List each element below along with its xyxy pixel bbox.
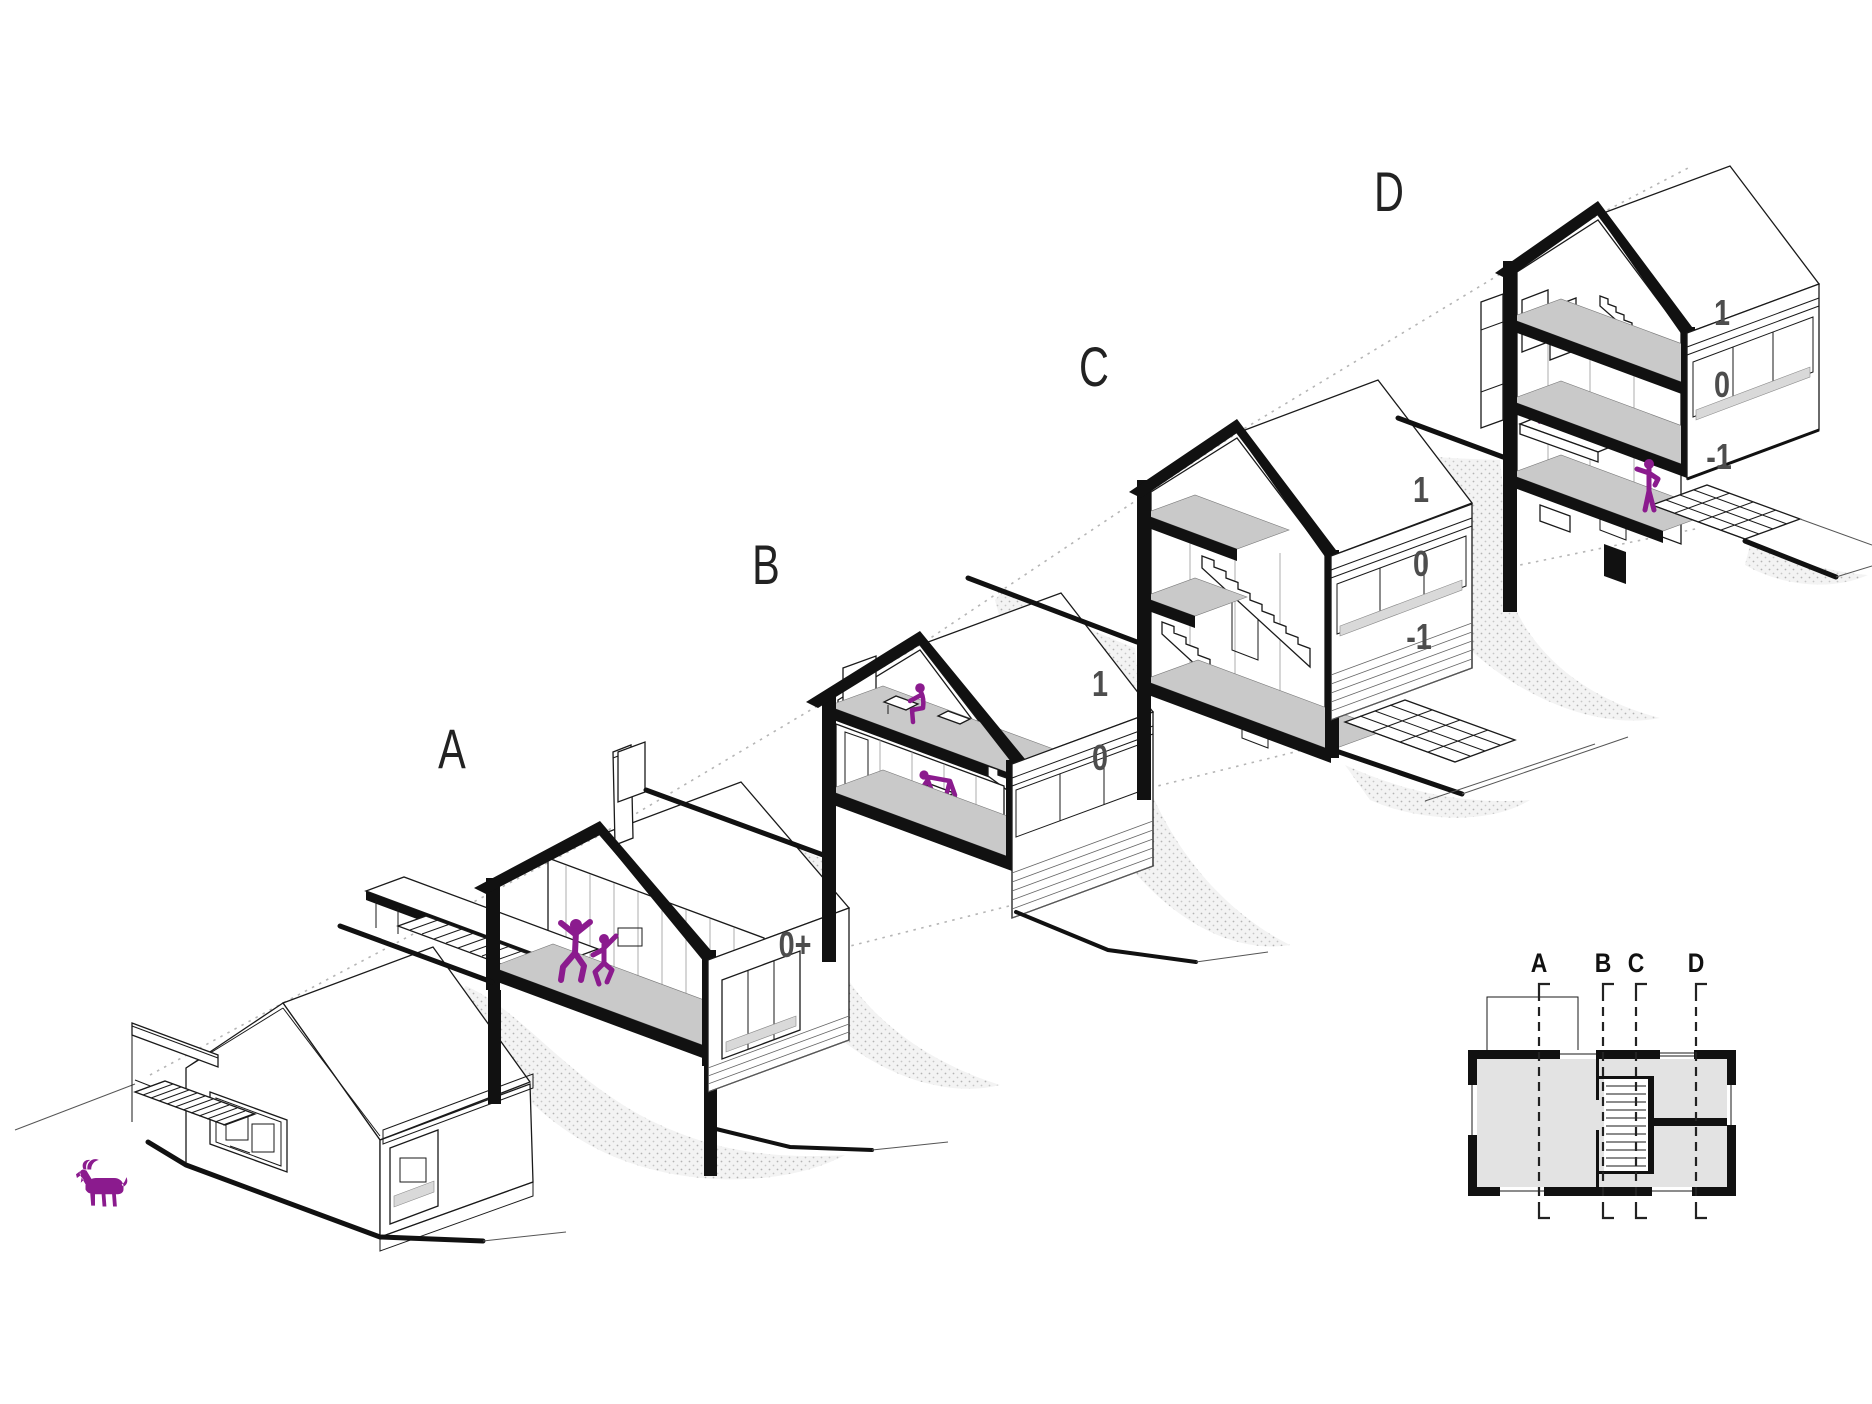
plan-terrace <box>1487 997 1578 1052</box>
level-label-c-0: 0 <box>1413 543 1429 584</box>
section-a-title: A <box>438 718 466 781</box>
plan-mark-b: B <box>1595 948 1612 978</box>
left-cut-wall <box>1137 480 1151 800</box>
house-overview <box>15 947 566 1251</box>
foundation <box>1604 544 1626 584</box>
diagram-canvas: A B C D A B C D 0+ 1 0 1 0 -1 1 0 -1 <box>0 0 1872 1404</box>
plan-mark-d: D <box>1688 948 1705 978</box>
level-label-d-0: 0 <box>1714 364 1730 405</box>
left-wall-strip <box>1481 294 1503 428</box>
level-label-d-minus1: -1 <box>1706 436 1732 477</box>
plan-mark-c: C <box>1628 948 1645 978</box>
cabinet <box>1540 505 1570 532</box>
left-cut-wall <box>1503 261 1517 612</box>
level-label-d-1: 1 <box>1714 292 1730 333</box>
section-b-title: B <box>752 534 780 597</box>
level-label-c-1: 1 <box>1413 469 1429 510</box>
architectural-diagram: A B C D A B C D 0+ 1 0 1 0 -1 1 0 -1 <box>0 0 1872 1404</box>
cut-post <box>618 742 645 802</box>
level-label-b-0: 0 <box>1092 737 1108 778</box>
level-label-a-0plus: 0+ <box>779 924 812 965</box>
level-label-c-minus1: -1 <box>1406 616 1432 657</box>
paving <box>1345 700 1515 762</box>
section-d-title: D <box>1374 161 1404 224</box>
plan-mark-a: A <box>1531 948 1548 978</box>
section-c-title: C <box>1079 336 1109 399</box>
floor-plan: A B C D <box>1468 948 1736 1218</box>
goat-icon <box>76 1159 127 1206</box>
left-cut-wall <box>822 692 836 962</box>
level-label-b-1: 1 <box>1092 663 1108 704</box>
